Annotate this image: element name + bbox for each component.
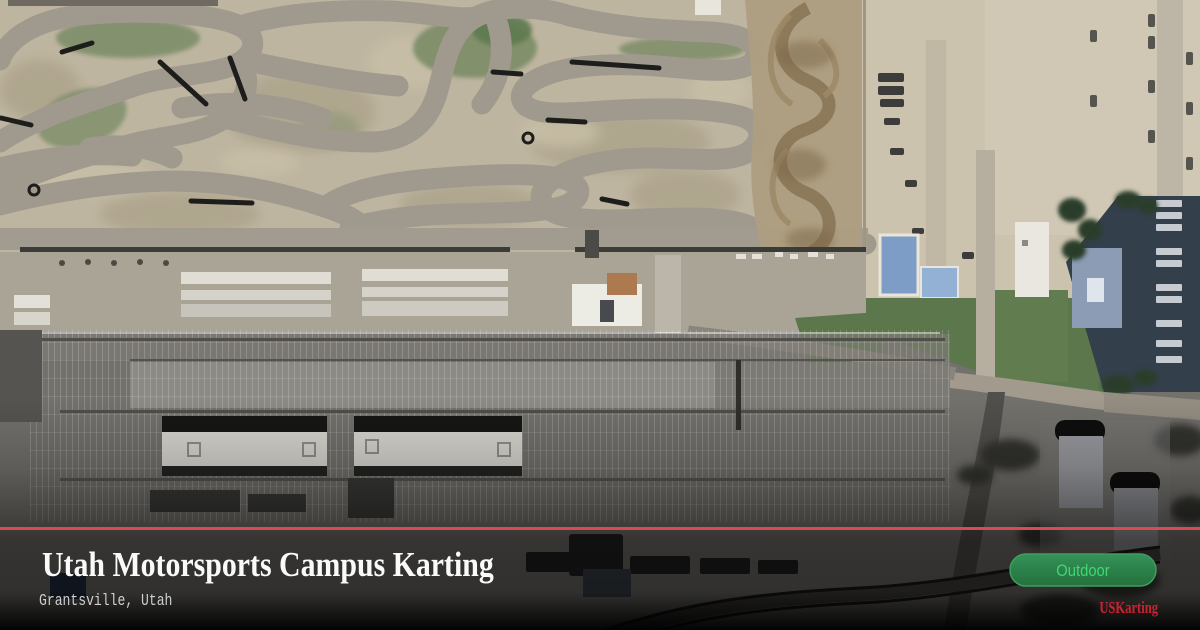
svg-text:Utah Motorsports Campus Kartin: Utah Motorsports Campus Karting (42, 546, 494, 585)
svg-text:Outdoor: Outdoor (1056, 562, 1110, 580)
svg-text:USKarting: USKarting (1099, 599, 1158, 617)
svg-text:Grantsville, Utah: Grantsville, Utah (39, 590, 172, 610)
